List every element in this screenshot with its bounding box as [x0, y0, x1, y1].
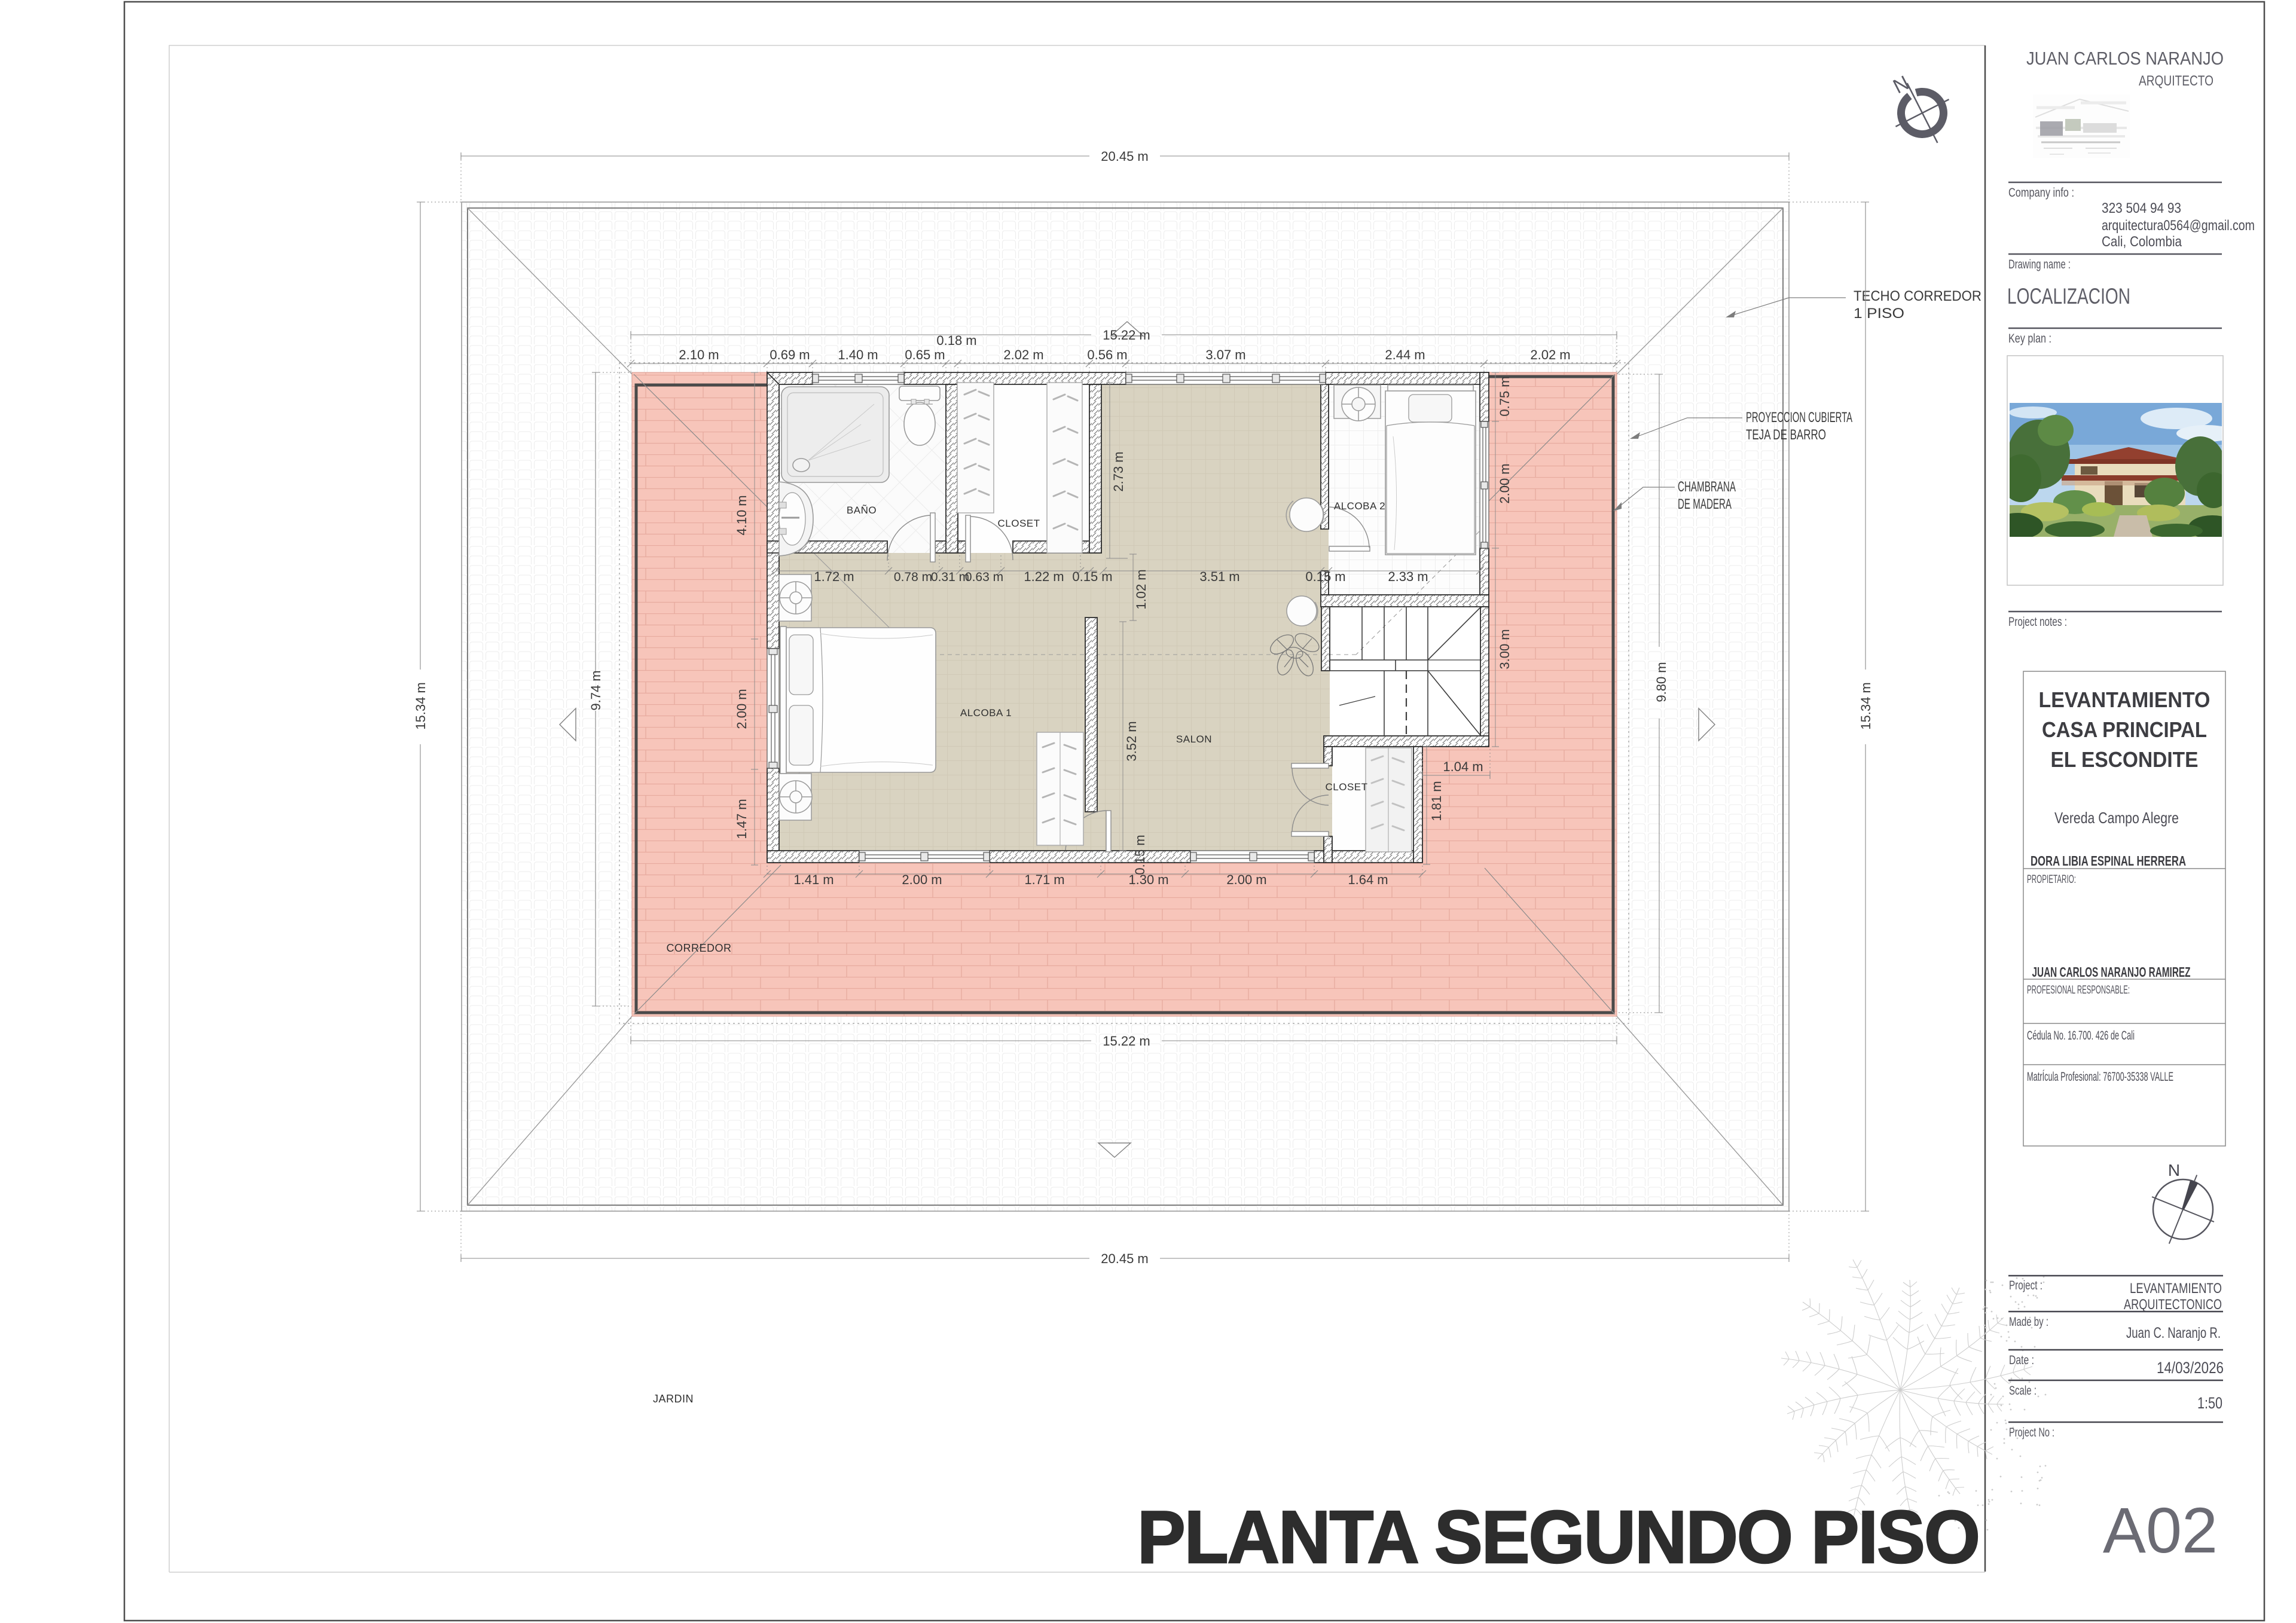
svg-text:2.00 m: 2.00 m	[734, 689, 749, 729]
svg-text:DORA LIBIA ESPINAL HERRERA: DORA LIBIA ESPINAL HERRERA	[2031, 853, 2186, 869]
svg-text:3.00 m: 3.00 m	[1497, 629, 1512, 669]
svg-text:0.31 m: 0.31 m	[931, 570, 969, 584]
svg-text:2.00 m: 2.00 m	[1226, 872, 1266, 887]
svg-text:2.10 m: 2.10 m	[679, 347, 719, 362]
svg-text:15.22 m: 15.22 m	[1103, 328, 1150, 343]
svg-text:0.69 m: 0.69 m	[770, 347, 810, 362]
svg-text:0.63 m: 0.63 m	[965, 570, 1003, 584]
svg-text:PROPIETARIO:: PROPIETARIO:	[2027, 873, 2076, 886]
svg-text:Scale :: Scale :	[2009, 1384, 2037, 1398]
svg-text:3.51 m: 3.51 m	[1199, 569, 1239, 584]
svg-text:LEVANTAMIENTO: LEVANTAMIENTO	[2130, 1280, 2222, 1297]
svg-text:ARQUITECTO: ARQUITECTO	[2139, 73, 2213, 89]
svg-text:1 PISO: 1 PISO	[1854, 305, 1904, 322]
svg-text:0.15 m: 0.15 m	[1072, 569, 1112, 584]
svg-text:Company info :: Company info :	[2008, 186, 2074, 200]
svg-text:Date :: Date :	[2009, 1353, 2034, 1367]
svg-text:15.34 m: 15.34 m	[413, 682, 428, 730]
svg-text:0.15 m: 0.15 m	[1132, 835, 1147, 875]
svg-text:ALCOBA 1: ALCOBA 1	[960, 707, 1012, 719]
svg-text:3.07 m: 3.07 m	[1205, 347, 1245, 362]
svg-text:DE MADERA: DE MADERA	[1678, 496, 1732, 512]
svg-text:0.56 m: 0.56 m	[1087, 347, 1127, 362]
svg-text:Cali, Colombia: Cali, Colombia	[2102, 234, 2182, 250]
svg-text:0.65 m: 0.65 m	[905, 347, 945, 362]
svg-text:JUAN CARLOS NARANJO: JUAN CARLOS NARANJO	[2026, 48, 2224, 69]
svg-text:1.71 m: 1.71 m	[1024, 872, 1064, 887]
svg-text:ALCOBA 2: ALCOBA 2	[1334, 500, 1385, 512]
svg-text:LOCALIZACION: LOCALIZACION	[2007, 284, 2130, 308]
svg-text:20.45 m: 20.45 m	[1101, 149, 1149, 164]
svg-text:arquitectura0564@gmail.com: arquitectura0564@gmail.com	[2102, 218, 2255, 234]
svg-text:2.02 m: 2.02 m	[1530, 347, 1570, 362]
svg-text:CORREDOR: CORREDOR	[666, 942, 731, 954]
svg-text:323 504 94 93: 323 504 94 93	[2102, 200, 2181, 216]
svg-text:Cédula No. 16.700. 426 de Cali: Cédula No. 16.700. 426 de Cali	[2027, 1029, 2135, 1043]
svg-text:CHAMBRANA: CHAMBRANA	[1678, 479, 1736, 495]
svg-text:Key plan :: Key plan :	[2008, 332, 2051, 346]
svg-text:1.22 m: 1.22 m	[1024, 569, 1064, 584]
svg-text:Project notes :: Project notes :	[2008, 615, 2067, 629]
svg-text:PROYECCION CUBIERTA: PROYECCION CUBIERTA	[1746, 409, 1852, 426]
svg-text:Made by :: Made by :	[2009, 1315, 2048, 1329]
svg-text:ARQUITECTONICO: ARQUITECTONICO	[2124, 1297, 2222, 1313]
svg-text:1.02 m: 1.02 m	[1134, 569, 1149, 609]
svg-text:1.40 m: 1.40 m	[838, 347, 878, 362]
svg-text:1:50: 1:50	[2197, 1394, 2222, 1412]
svg-text:1.64 m: 1.64 m	[1348, 872, 1388, 887]
svg-text:2.00 m: 2.00 m	[1497, 463, 1512, 503]
svg-text:9.80 m: 9.80 m	[1654, 662, 1669, 702]
svg-text:JARDIN: JARDIN	[653, 1393, 694, 1405]
svg-text:Juan C. Naranjo R.: Juan C. Naranjo R.	[2126, 1325, 2221, 1341]
svg-text:Vereda Campo Alegre: Vereda Campo Alegre	[2054, 809, 2179, 827]
svg-text:Drawing name :: Drawing name :	[2008, 258, 2071, 271]
svg-text:1.72 m: 1.72 m	[814, 569, 854, 584]
svg-text:2.44 m: 2.44 m	[1385, 347, 1425, 362]
svg-text:PROFESIONAL RESPONSABLE:: PROFESIONAL RESPONSABLE:	[2027, 984, 2130, 997]
svg-text:1.04 m: 1.04 m	[1443, 759, 1483, 774]
svg-text:0.78 m: 0.78 m	[894, 570, 932, 584]
svg-text:2.33 m: 2.33 m	[1388, 569, 1428, 584]
svg-text:0.75 m: 0.75 m	[1497, 376, 1512, 416]
svg-text:A02: A02	[2103, 1494, 2218, 1566]
svg-text:1.30 m: 1.30 m	[1128, 872, 1168, 887]
svg-text:1.47 m: 1.47 m	[734, 799, 749, 839]
svg-text:2.02 m: 2.02 m	[1003, 347, 1043, 362]
svg-text:LEVANTAMIENTO: LEVANTAMIENTO	[2039, 687, 2210, 712]
svg-text:CLOSET: CLOSET	[997, 518, 1040, 529]
svg-text:2.73 m: 2.73 m	[1111, 451, 1126, 491]
svg-text:15.22 m: 15.22 m	[1103, 1034, 1150, 1049]
svg-text:3.52 m: 3.52 m	[1124, 721, 1139, 761]
svg-text:0.15 m: 0.15 m	[1305, 569, 1345, 584]
svg-text:TECHO CORREDOR: TECHO CORREDOR	[1854, 288, 1981, 304]
svg-text:9.74 m: 9.74 m	[588, 670, 603, 710]
svg-text:14/03/2026: 14/03/2026	[2157, 1359, 2224, 1377]
svg-text:0.18 m: 0.18 m	[936, 333, 976, 348]
svg-text:PLANTA SEGUNDO PISO: PLANTA SEGUNDO PISO	[1137, 1496, 1979, 1579]
svg-text:CLOSET: CLOSET	[1325, 781, 1367, 793]
svg-text:JUAN CARLOS NARANJO RAMIREZ: JUAN CARLOS NARANJO RAMIREZ	[2032, 964, 2191, 980]
svg-text:CASA PRINCIPAL: CASA PRINCIPAL	[2042, 717, 2207, 742]
svg-text:TEJA DE BARRO: TEJA DE BARRO	[1746, 427, 1826, 443]
svg-text:4.10 m: 4.10 m	[734, 495, 749, 535]
svg-text:1.41 m: 1.41 m	[793, 872, 833, 887]
svg-text:20.45 m: 20.45 m	[1101, 1251, 1149, 1266]
svg-text:MatrÍcula Profesional: 76700-3: MatrÍcula Profesional: 76700-35338 VALLE	[2027, 1070, 2173, 1084]
svg-text:BAÑO: BAÑO	[847, 505, 877, 516]
svg-text:2.00 m: 2.00 m	[902, 872, 942, 887]
svg-text:SALON: SALON	[1176, 733, 1212, 745]
svg-text:Project No :: Project No :	[2009, 1426, 2054, 1439]
svg-text:15.34 m: 15.34 m	[1858, 682, 1873, 730]
svg-text:EL ESCONDITE: EL ESCONDITE	[2051, 747, 2199, 772]
svg-text:1.81 m: 1.81 m	[1429, 781, 1444, 821]
svg-text:Project :: Project :	[2009, 1279, 2042, 1292]
svg-text:N: N	[2168, 1161, 2180, 1179]
